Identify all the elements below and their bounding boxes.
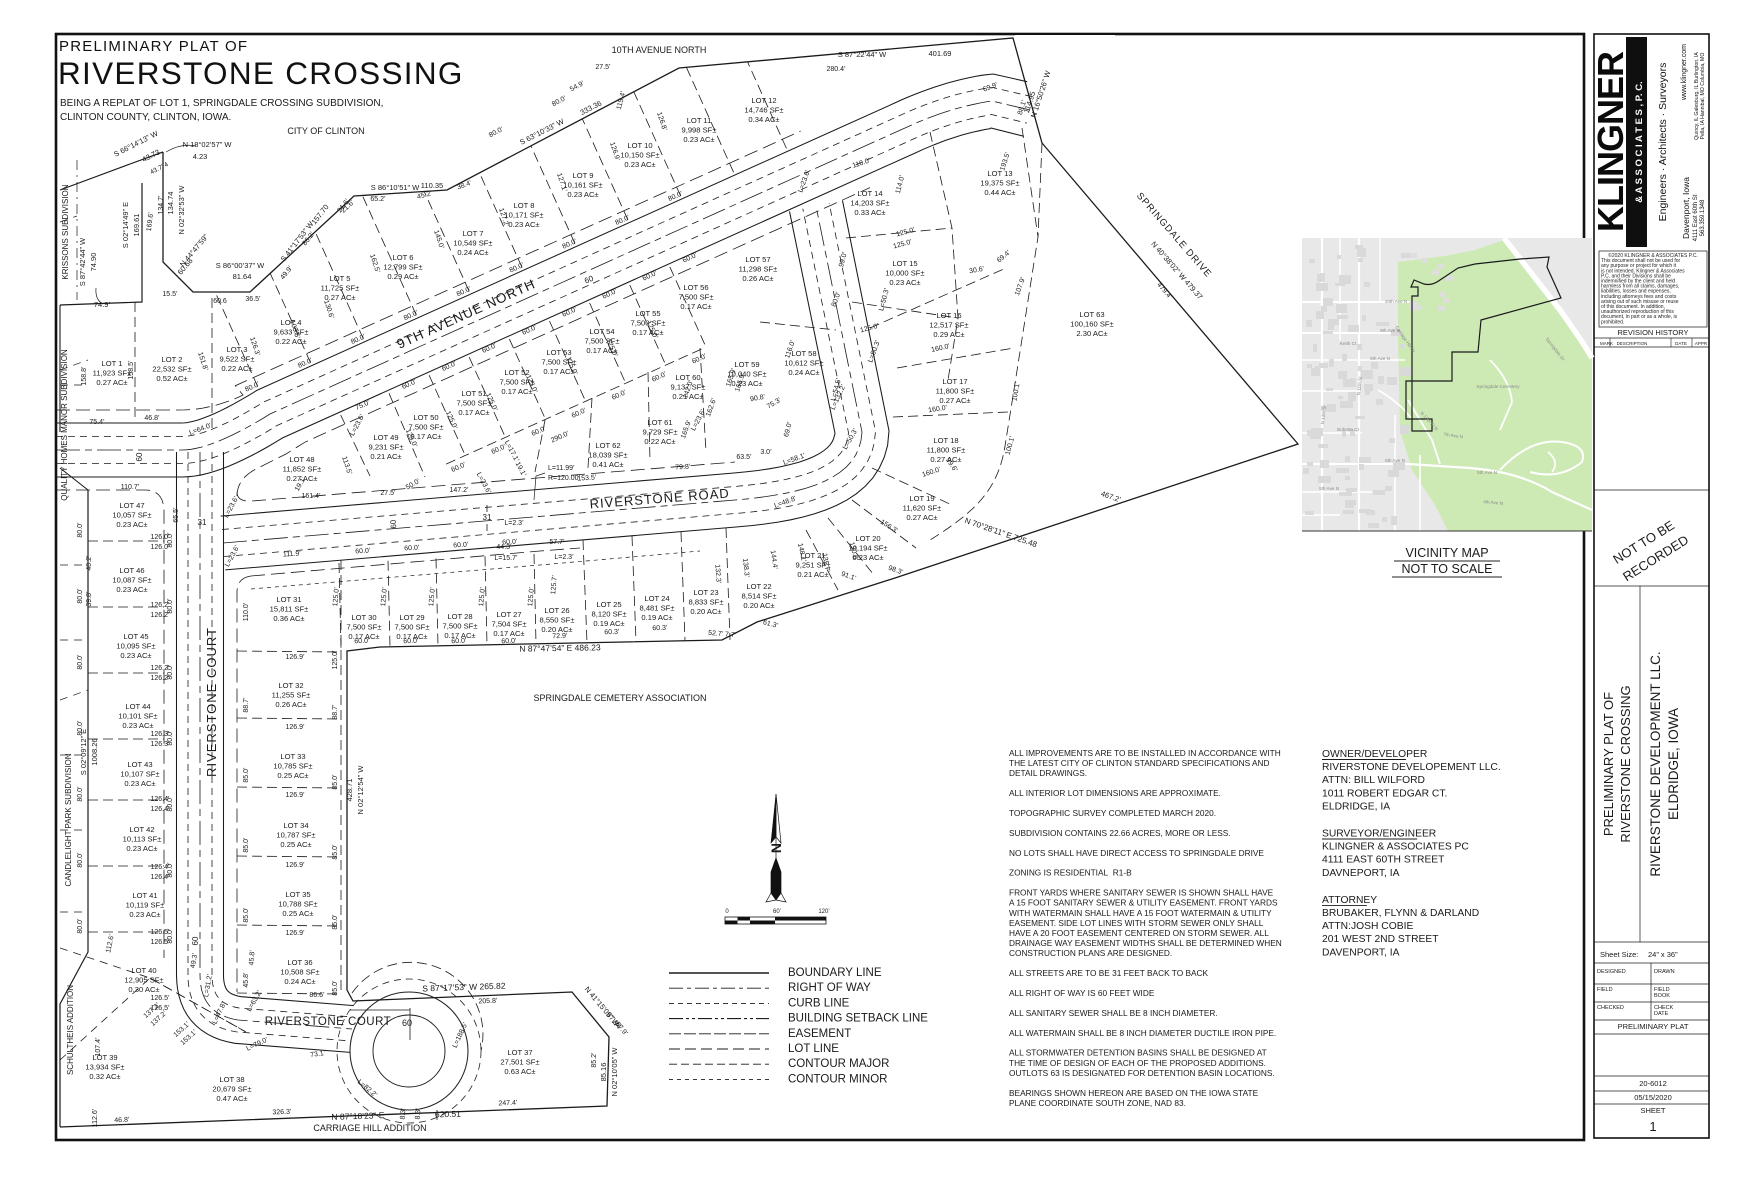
svg-text:ATTN:JOSH COBIE: ATTN:JOSH COBIE bbox=[1322, 921, 1413, 932]
svg-text:prohibited.: prohibited. bbox=[1601, 319, 1624, 325]
svg-text:LOT 59: LOT 59 bbox=[734, 360, 759, 369]
svg-text:ELDRIDGE, IA: ELDRIDGE, IA bbox=[1322, 801, 1390, 812]
svg-text:05/15/2020: 05/15/2020 bbox=[1634, 1093, 1672, 1102]
svg-text:CANDLELIGHT PARK SUBDIVISION: CANDLELIGHT PARK SUBDIVISION bbox=[64, 753, 73, 886]
svg-text:12,517 SF±: 12,517 SF± bbox=[929, 321, 968, 330]
svg-text:LOT 33: LOT 33 bbox=[280, 752, 305, 761]
svg-text:79.8’: 79.8’ bbox=[675, 463, 691, 471]
svg-text:LOT 42: LOT 42 bbox=[129, 825, 154, 834]
svg-text:11,255 SF±: 11,255 SF± bbox=[272, 691, 311, 700]
svg-text:CARRIAGE HILL ADDITION: CARRIAGE HILL ADDITION bbox=[313, 1123, 426, 1133]
svg-text:LOT 34: LOT 34 bbox=[283, 821, 308, 830]
svg-text:SHEET: SHEET bbox=[1640, 1106, 1665, 1115]
svg-text:ZONING IS RESIDENTIAL R1-B: ZONING IS RESIDENTIAL R1-B bbox=[1009, 868, 1132, 878]
svg-text:CHECKED: CHECKED bbox=[1597, 1005, 1624, 1011]
svg-text:THE LATEST CITY OF CLINTON STA: THE LATEST CITY OF CLINTON STANDARD SPEC… bbox=[1009, 758, 1269, 768]
svg-text:CONTOUR MINOR: CONTOUR MINOR bbox=[788, 1073, 887, 1085]
svg-text:60.0’: 60.0’ bbox=[501, 638, 517, 646]
svg-text:Springdale Cemetery: Springdale Cemetery bbox=[1476, 384, 1520, 389]
svg-text:LOT 1: LOT 1 bbox=[102, 359, 123, 368]
svg-text:0.23 AC±: 0.23 AC± bbox=[889, 278, 920, 287]
svg-text:100,160 SF±: 100,160 SF± bbox=[1070, 320, 1113, 329]
svg-text:10,000 SF±: 10,000 SF± bbox=[885, 269, 924, 278]
svg-text:85.2’: 85.2’ bbox=[591, 1052, 598, 1068]
svg-text:DATE: DATE bbox=[1654, 1011, 1669, 1017]
svg-text:126.9’: 126.9’ bbox=[285, 930, 305, 937]
svg-text:PRELIMINARY PLAT OF: PRELIMINARY PLAT OF bbox=[1601, 692, 1616, 836]
svg-text:85.0’: 85.0’ bbox=[243, 837, 250, 853]
svg-text:27,501 SF±: 27,501 SF± bbox=[500, 1058, 539, 1067]
svg-text:0.22 AC±: 0.22 AC± bbox=[644, 437, 675, 446]
svg-text:S 87°42’44” W: S 87°42’44” W bbox=[78, 237, 87, 286]
svg-text:0.23 AC±: 0.23 AC± bbox=[116, 585, 147, 594]
svg-text:0.19 AC±: 0.19 AC± bbox=[641, 613, 672, 622]
svg-text:6th Ave N: 6th Ave N bbox=[1385, 458, 1405, 463]
svg-text:205.8’: 205.8’ bbox=[478, 998, 498, 1006]
svg-text:Sheet Size:: Sheet Size: bbox=[1600, 950, 1638, 959]
svg-text:N 02°32’53” W: N 02°32’53” W bbox=[177, 185, 186, 235]
svg-text:KLINGNER: KLINGNER bbox=[1590, 51, 1631, 232]
svg-text:LOT 30: LOT 30 bbox=[351, 613, 376, 622]
svg-text:63.5’: 63.5’ bbox=[736, 454, 752, 461]
svg-text:132.3’: 132.3’ bbox=[713, 564, 721, 584]
svg-text:14,746 SF±: 14,746 SF± bbox=[744, 106, 783, 115]
svg-text:Keith Ct: Keith Ct bbox=[1340, 341, 1357, 346]
svg-text:0.17 AC±: 0.17 AC± bbox=[493, 629, 524, 638]
svg-text:BRUBAKER, FLYNN & DARLAND: BRUBAKER, FLYNN & DARLAND bbox=[1322, 908, 1479, 919]
svg-text:0.47 AC±: 0.47 AC± bbox=[216, 1094, 247, 1103]
svg-text:LOT 49: LOT 49 bbox=[373, 433, 398, 442]
svg-text:N 02°12’54” W: N 02°12’54” W bbox=[356, 765, 365, 815]
svg-text:TOPOGRAPHIC SURVEY COMPLETED M: TOPOGRAPHIC SURVEY COMPLETED MARCH 2020. bbox=[1009, 808, 1216, 818]
svg-text:LOT 10: LOT 10 bbox=[627, 141, 652, 150]
svg-text:BOUNDARY LINE: BOUNDARY LINE bbox=[788, 967, 882, 979]
svg-text:60.0’: 60.0’ bbox=[403, 638, 419, 646]
svg-text:S 86°10’51” W: S 86°10’51” W bbox=[371, 183, 420, 192]
svg-text:CITY OF CLINTON: CITY OF CLINTON bbox=[287, 126, 364, 136]
svg-text:4111 East 60th St: 4111 East 60th St bbox=[1693, 194, 1699, 241]
svg-text:9,729 SF±: 9,729 SF± bbox=[643, 428, 678, 437]
svg-text:10,095 SF±: 10,095 SF± bbox=[116, 642, 155, 651]
svg-text:EASEMENT: EASEMENT bbox=[788, 1028, 851, 1040]
svg-text:RIVERSTONE DEVELOPMENT LLC.: RIVERSTONE DEVELOPMENT LLC. bbox=[1648, 651, 1663, 876]
svg-text:153.5’: 153.5’ bbox=[577, 474, 597, 482]
svg-text:2.30 AC±: 2.30 AC± bbox=[1076, 329, 1107, 338]
svg-text:85.0’: 85.0’ bbox=[332, 914, 339, 930]
svg-text:LOT 15: LOT 15 bbox=[892, 259, 917, 268]
svg-text:L=2.3’: L=2.3’ bbox=[504, 520, 524, 527]
svg-text:80.0’: 80.0’ bbox=[167, 928, 174, 944]
svg-text:0.23 AC±: 0.23 AC± bbox=[122, 721, 153, 730]
svg-text:60.0’: 60.0’ bbox=[355, 547, 371, 555]
svg-text:DRAINAGE WAY EASEMENT WIDTHS S: DRAINAGE WAY EASEMENT WIDTHS SHALL BE DE… bbox=[1009, 938, 1282, 948]
svg-text:R=120.00’: R=120.00’ bbox=[548, 475, 581, 482]
svg-text:8,120 SF±: 8,120 SF± bbox=[592, 610, 627, 619]
svg-text:LOT 23: LOT 23 bbox=[693, 588, 718, 597]
svg-text:LOT 9: LOT 9 bbox=[573, 171, 594, 180]
svg-text:60: 60 bbox=[135, 452, 144, 461]
svg-text:46.8’: 46.8’ bbox=[114, 1117, 130, 1125]
svg-text:8th Ave N: 8th Ave N bbox=[1370, 356, 1390, 361]
svg-text:11,620 SF±: 11,620 SF± bbox=[903, 504, 942, 513]
svg-text:80.0’: 80.0’ bbox=[77, 786, 84, 802]
svg-text:563.359.1348: 563.359.1348 bbox=[1700, 199, 1706, 236]
svg-text:KRISSONS SUBDIVISION: KRISSONS SUBDIVISION bbox=[61, 184, 70, 279]
svg-text:L=2.3’: L=2.3’ bbox=[554, 554, 574, 561]
svg-text:31: 31 bbox=[198, 518, 207, 527]
svg-text:10,788 SF±: 10,788 SF± bbox=[278, 900, 317, 909]
svg-text:60: 60 bbox=[191, 936, 200, 945]
svg-text:134.7’: 134.7’ bbox=[158, 195, 165, 215]
svg-text:125.0’: 125.0’ bbox=[332, 650, 339, 670]
svg-text:10,150 SF±: 10,150 SF± bbox=[620, 151, 659, 160]
svg-text:0.23 AC±: 0.23 AC± bbox=[129, 910, 160, 919]
svg-text:BOOK: BOOK bbox=[1654, 993, 1670, 999]
svg-text:247.4’: 247.4’ bbox=[498, 1100, 518, 1108]
svg-text:OWNER/DEVELOPER: OWNER/DEVELOPER bbox=[1322, 749, 1427, 760]
svg-text:80.0’: 80.0’ bbox=[77, 654, 84, 670]
svg-text:0.29 AC±: 0.29 AC± bbox=[933, 330, 964, 339]
svg-text:12,799 SF±: 12,799 SF± bbox=[383, 263, 422, 272]
svg-text:401.69: 401.69 bbox=[929, 49, 952, 58]
svg-text:10,171 SF±: 10,171 SF± bbox=[504, 211, 543, 220]
svg-text:10,101 SF±: 10,101 SF± bbox=[118, 712, 157, 721]
svg-text:OUTLOTS 63 IS DESIGNATED FOR D: OUTLOTS 63 IS DESIGNATED FOR DETENTION B… bbox=[1009, 1068, 1275, 1078]
svg-text:0.25 AC±: 0.25 AC± bbox=[282, 909, 313, 918]
svg-text:8,514 SF±: 8,514 SF± bbox=[742, 592, 777, 601]
svg-text:11,298 SF±: 11,298 SF± bbox=[739, 265, 778, 274]
svg-text:0.27 AC±: 0.27 AC± bbox=[939, 396, 970, 405]
svg-text:8.3’: 8.3’ bbox=[415, 1108, 423, 1120]
svg-text:REVISION HISTORY: REVISION HISTORY bbox=[1618, 328, 1689, 337]
svg-text:126.9’: 126.9’ bbox=[285, 792, 305, 799]
svg-text:7,500 SF±: 7,500 SF± bbox=[395, 623, 430, 632]
svg-text:S 87°22’44” W: S 87°22’44” W bbox=[838, 50, 887, 59]
svg-text:5th Ave N: 5th Ave N bbox=[1319, 486, 1339, 491]
svg-text:ALL SANITARY SEWER SHALL BE 8: ALL SANITARY SEWER SHALL BE 8 INCH DIAME… bbox=[1009, 1008, 1218, 1018]
svg-text:40.2’: 40.2’ bbox=[86, 555, 93, 571]
svg-text:36.5’: 36.5’ bbox=[245, 296, 261, 303]
svg-text:80.0’: 80.0’ bbox=[167, 664, 174, 680]
svg-text:60’: 60’ bbox=[773, 909, 781, 915]
svg-text:RIVERSTONE CROSSING: RIVERSTONE CROSSING bbox=[1618, 685, 1633, 842]
svg-text:80.0’: 80.0’ bbox=[77, 720, 84, 736]
svg-text:DATE: DATE bbox=[1675, 341, 1687, 346]
svg-text:LOT 57: LOT 57 bbox=[745, 255, 770, 264]
svg-text:LOT 32: LOT 32 bbox=[278, 681, 303, 690]
svg-text:4111 EAST 60TH STREET: 4111 EAST 60TH STREET bbox=[1322, 855, 1445, 866]
svg-text:27.5’: 27.5’ bbox=[595, 64, 611, 71]
svg-text:LOT 43: LOT 43 bbox=[127, 760, 152, 769]
svg-text:0.23 AC±: 0.23 AC± bbox=[508, 220, 539, 229]
svg-text:LOT 14: LOT 14 bbox=[857, 189, 882, 198]
svg-text:60.0’: 60.0’ bbox=[502, 538, 518, 546]
svg-text:85.0’: 85.0’ bbox=[332, 774, 339, 790]
svg-text:MARK: MARK bbox=[1600, 341, 1613, 346]
svg-text:HAVE A 20 FOOT EASEMENT CENTER: HAVE A 20 FOOT EASEMENT CENTERED ON STOR… bbox=[1009, 928, 1269, 938]
svg-text:CURB LINE: CURB LINE bbox=[788, 997, 850, 1009]
svg-text:LOT 45: LOT 45 bbox=[123, 632, 148, 641]
svg-text:0.23 AC±: 0.23 AC± bbox=[124, 779, 155, 788]
svg-text:428.71: 428.71 bbox=[345, 779, 354, 802]
svg-text:201 WEST 2ND STREET: 201 WEST 2ND STREET bbox=[1322, 934, 1439, 945]
svg-text:14,203 SF±: 14,203 SF± bbox=[850, 199, 889, 208]
svg-text:BEING A REPLAT OF LOT 1, SPRIN: BEING A REPLAT OF LOT 1, SPRINGDALE CROS… bbox=[60, 98, 383, 109]
svg-text:KLINGNER & ASSOCIATES PC: KLINGNER & ASSOCIATES PC bbox=[1322, 842, 1469, 853]
svg-text:LOT 31: LOT 31 bbox=[276, 595, 301, 604]
svg-text:0.30 AC±: 0.30 AC± bbox=[128, 985, 159, 994]
svg-text:10,113 SF±: 10,113 SF± bbox=[123, 835, 162, 844]
svg-text:LOT 2: LOT 2 bbox=[162, 355, 183, 364]
svg-text:DAVNEPORT, IA: DAVNEPORT, IA bbox=[1322, 868, 1400, 879]
svg-text:7,500 SF±: 7,500 SF± bbox=[443, 622, 478, 631]
svg-text:CONTOUR MAJOR: CONTOUR MAJOR bbox=[788, 1058, 889, 1070]
svg-text:0.27 AC±: 0.27 AC± bbox=[906, 513, 937, 522]
svg-text:74.9’: 74.9’ bbox=[94, 300, 111, 309]
svg-text:L=15.7’: L=15.7’ bbox=[494, 555, 518, 562]
svg-text:LOT 25: LOT 25 bbox=[596, 600, 621, 609]
svg-text:0.21 AC±: 0.21 AC± bbox=[370, 452, 401, 461]
svg-text:57.7’: 57.7’ bbox=[549, 539, 565, 546]
svg-text:0.17 AC±: 0.17 AC± bbox=[680, 302, 711, 311]
svg-text:0.17 AC±: 0.17 AC± bbox=[458, 408, 489, 417]
svg-text:LOT 5: LOT 5 bbox=[330, 274, 351, 283]
svg-text:85.0’: 85.0’ bbox=[243, 767, 250, 783]
svg-text:45.8’: 45.8’ bbox=[248, 950, 256, 966]
svg-text:VICINITY MAP: VICINITY MAP bbox=[1405, 546, 1488, 560]
svg-text:SURVEYOR/ENGINEER: SURVEYOR/ENGINEER bbox=[1322, 829, 1436, 840]
svg-text:LOT LINE: LOT LINE bbox=[788, 1043, 839, 1055]
svg-text:111.9’: 111.9’ bbox=[283, 551, 302, 559]
svg-text:DAVENPORT, IA: DAVENPORT, IA bbox=[1322, 947, 1400, 958]
svg-text:60.0’: 60.0’ bbox=[354, 638, 370, 646]
svg-text:A 15 FOOT SANITARY SEWER & UTI: A 15 FOOT SANITARY SEWER & UTILITY EASEM… bbox=[1009, 898, 1278, 908]
svg-text:158.8’: 158.8’ bbox=[81, 366, 88, 386]
svg-text:RIVERSTONE COURT: RIVERSTONE COURT bbox=[265, 1016, 391, 1028]
svg-text:60.0’: 60.0’ bbox=[404, 544, 420, 552]
svg-text:86.6’: 86.6’ bbox=[309, 992, 325, 999]
svg-text:LOT 63: LOT 63 bbox=[1079, 310, 1104, 319]
svg-text:110.35: 110.35 bbox=[421, 181, 443, 190]
svg-text:0.63 AC±: 0.63 AC± bbox=[504, 1067, 535, 1076]
svg-text:LOT 62: LOT 62 bbox=[595, 441, 620, 450]
svg-text:ALL STREETS ARE TO BE 31 FEET: ALL STREETS ARE TO BE 31 FEET BACK TO BA… bbox=[1009, 968, 1209, 978]
svg-text:& A S S O C I A T E S , P. C.: & A S S O C I A T E S , P. C. bbox=[1634, 81, 1645, 202]
svg-text:0.32 AC±: 0.32 AC± bbox=[89, 1072, 120, 1081]
svg-text:5th Ave N: 5th Ave N bbox=[1477, 470, 1497, 475]
svg-text:FRONT YARDS WHERE SANITARY SEW: FRONT YARDS WHERE SANITARY SEWER IS SHOW… bbox=[1009, 888, 1274, 898]
svg-text:0.33 AC±: 0.33 AC± bbox=[854, 208, 885, 217]
svg-text:LOT 17: LOT 17 bbox=[942, 377, 967, 386]
svg-text:72.9’: 72.9’ bbox=[552, 633, 568, 641]
svg-text:10,787 SF±: 10,787 SF± bbox=[276, 831, 315, 840]
svg-text:0.27 AC±: 0.27 AC± bbox=[96, 378, 127, 387]
svg-text:LOT 3: LOT 3 bbox=[227, 345, 248, 354]
svg-text:60.3’: 60.3’ bbox=[604, 629, 620, 637]
svg-text:80.0’: 80.0’ bbox=[167, 598, 174, 614]
svg-text:20-6012: 20-6012 bbox=[1639, 1079, 1667, 1088]
svg-text:60: 60 bbox=[402, 1018, 412, 1028]
svg-text:S 02°14’49” E: S 02°14’49” E bbox=[121, 202, 130, 248]
svg-text:10,119 SF±: 10,119 SF± bbox=[126, 901, 165, 910]
svg-text:LOT 38: LOT 38 bbox=[219, 1075, 244, 1084]
svg-text:LOT 37: LOT 37 bbox=[507, 1048, 532, 1057]
svg-text:LOT 11: LOT 11 bbox=[687, 116, 712, 125]
svg-text:10,107 SF±: 10,107 SF± bbox=[120, 770, 159, 779]
svg-text:0.23 AC±: 0.23 AC± bbox=[120, 651, 151, 660]
svg-text:10,087 SF±: 10,087 SF± bbox=[112, 576, 151, 585]
svg-text:LOT 20: LOT 20 bbox=[855, 534, 880, 543]
svg-text:10th Ave N: 10th Ave N bbox=[1385, 299, 1407, 304]
svg-text:80.0’: 80.0’ bbox=[167, 532, 174, 548]
svg-text:N 18°02’57” W: N 18°02’57” W bbox=[183, 140, 233, 149]
svg-text:LOT 22: LOT 22 bbox=[746, 582, 771, 591]
svg-text:7,500 SF±: 7,500 SF± bbox=[457, 399, 492, 408]
svg-text:19,375 SF±: 19,375 SF± bbox=[980, 179, 1019, 188]
svg-text:LOT 26: LOT 26 bbox=[544, 606, 569, 615]
svg-text:7,500 SF±: 7,500 SF± bbox=[679, 293, 714, 302]
svg-text:8,833 SF±: 8,833 SF± bbox=[689, 598, 724, 607]
svg-text:LOT 18: LOT 18 bbox=[933, 436, 958, 445]
svg-text:0.20 AC±: 0.20 AC± bbox=[690, 607, 721, 616]
svg-text:280.4’: 280.4’ bbox=[826, 66, 846, 73]
svg-text:PLANE COORDINATE SOUTH ZONE, N: PLANE COORDINATE SOUTH ZONE, NAD 83. bbox=[1009, 1098, 1186, 1108]
svg-text:LOT 36: LOT 36 bbox=[287, 958, 312, 967]
svg-text:126.5’: 126.5’ bbox=[150, 995, 170, 1002]
svg-text:126.9’: 126.9’ bbox=[285, 862, 305, 869]
svg-text:0.52 AC±: 0.52 AC± bbox=[156, 374, 187, 383]
svg-text:BEARINGS SHOWN HEREON ARE BASE: BEARINGS SHOWN HEREON ARE BASED ON THE I… bbox=[1009, 1088, 1259, 1098]
svg-text:LOT 50: LOT 50 bbox=[413, 413, 438, 422]
svg-text:0.23 AC±: 0.23 AC± bbox=[116, 520, 147, 529]
svg-text:0.22 AC±: 0.22 AC± bbox=[221, 364, 252, 373]
svg-text:8,550 SF±: 8,550 SF± bbox=[540, 616, 575, 625]
svg-text:0.26 AC±: 0.26 AC± bbox=[742, 274, 773, 283]
svg-text:ALL WATERMAIN SHALL BE 8 INCH: ALL WATERMAIN SHALL BE 8 INCH DIAMETER D… bbox=[1009, 1028, 1276, 1038]
svg-text:ATTORNEY: ATTORNEY bbox=[1322, 895, 1377, 906]
svg-text:N 02°10’05” W: N 02°10’05” W bbox=[610, 1047, 619, 1097]
svg-text:LOT 61: LOT 61 bbox=[647, 418, 672, 427]
svg-text:LOT 53: LOT 53 bbox=[546, 348, 571, 357]
svg-text:75.4’: 75.4’ bbox=[89, 419, 105, 426]
svg-text:N: N bbox=[768, 843, 784, 853]
svg-text:15.5’: 15.5’ bbox=[162, 291, 178, 298]
svg-text:Bobetta Ct: Bobetta Ct bbox=[1337, 427, 1359, 432]
svg-text:www.klingner.com: www.klingner.com bbox=[1681, 44, 1688, 101]
svg-text:65.5’: 65.5’ bbox=[173, 507, 180, 523]
svg-text:LOT 40: LOT 40 bbox=[131, 966, 156, 975]
svg-text:RIVERSTONE CROSSING: RIVERSTONE CROSSING bbox=[58, 55, 464, 91]
svg-text:20,679 SF±: 20,679 SF± bbox=[212, 1085, 251, 1094]
svg-text:10,508 SF±: 10,508 SF± bbox=[280, 968, 319, 977]
svg-text:LOT 24: LOT 24 bbox=[644, 594, 669, 603]
svg-text:88.7’: 88.7’ bbox=[332, 704, 339, 720]
svg-text:0.23 AC±: 0.23 AC± bbox=[567, 190, 598, 199]
svg-text:CONSTRUCTION PLANS ARE DESIGNE: CONSTRUCTION PLANS ARE DESIGNED. bbox=[1009, 948, 1172, 958]
svg-text:46.8’: 46.8’ bbox=[144, 415, 160, 422]
svg-text:81.64: 81.64 bbox=[233, 272, 252, 281]
svg-text:107.4’: 107.4’ bbox=[95, 1037, 102, 1057]
svg-text:65.2’: 65.2’ bbox=[370, 196, 386, 203]
svg-text:0.25 AC±: 0.25 AC± bbox=[280, 840, 311, 849]
svg-text:N 87°18’23” E: N 87°18’23” E bbox=[331, 1110, 385, 1122]
svg-text:7,500 SF±: 7,500 SF± bbox=[347, 623, 382, 632]
svg-text:7,504 SF±: 7,504 SF± bbox=[492, 620, 527, 629]
svg-text:0.17 AC±: 0.17 AC± bbox=[501, 387, 532, 396]
svg-text:PRELIMINARY PLAT OF: PRELIMINARY PLAT OF bbox=[59, 38, 248, 55]
svg-text:85.0’: 85.0’ bbox=[243, 907, 250, 923]
svg-text:9,522 SF±: 9,522 SF± bbox=[220, 355, 255, 364]
svg-text:161.4’: 161.4’ bbox=[301, 493, 321, 500]
svg-text:DETAIL DRAWINGS.: DETAIL DRAWINGS. bbox=[1009, 768, 1087, 778]
svg-text:LOT 48: LOT 48 bbox=[289, 455, 314, 464]
svg-text:EASEMENT. SIDE LOT LINES WITH: EASEMENT. SIDE LOT LINES WITH STORM SEWE… bbox=[1009, 918, 1264, 928]
svg-text:LOT 58: LOT 58 bbox=[791, 349, 816, 358]
svg-text:10,785 SF±: 10,785 SF± bbox=[273, 762, 312, 771]
svg-text:60.6: 60.6 bbox=[213, 298, 227, 305]
svg-text:LOT 54: LOT 54 bbox=[589, 327, 614, 336]
svg-text:N 87°47’54” E 486.23: N 87°47’54” E 486.23 bbox=[519, 642, 601, 653]
svg-text:80.0’: 80.0’ bbox=[77, 522, 84, 538]
svg-text:LOT 12: LOT 12 bbox=[751, 96, 776, 105]
svg-text:BUILDING SETBACK LINE: BUILDING SETBACK LINE bbox=[788, 1013, 928, 1025]
svg-text:24” x 36”: 24” x 36” bbox=[1648, 950, 1678, 959]
svg-text:13,934 SF±: 13,934 SF± bbox=[85, 1063, 124, 1072]
svg-text:SCHULTHEIS ADDITION: SCHULTHEIS ADDITION bbox=[66, 985, 75, 1075]
svg-text:0.23 AC±: 0.23 AC± bbox=[126, 844, 157, 853]
svg-text:11,800 SF±: 11,800 SF± bbox=[936, 387, 975, 396]
svg-text:LOT 47: LOT 47 bbox=[119, 501, 144, 510]
svg-text:60.0’: 60.0’ bbox=[451, 638, 467, 646]
svg-text:LOT 41: LOT 41 bbox=[132, 891, 157, 900]
svg-text:DRAWN: DRAWN bbox=[1654, 969, 1675, 975]
svg-text:0.20 AC±: 0.20 AC± bbox=[743, 601, 774, 610]
svg-text:110.0’: 110.0’ bbox=[243, 602, 250, 621]
svg-text:60.0’: 60.0’ bbox=[453, 541, 469, 549]
svg-text:126.9’: 126.9’ bbox=[285, 724, 305, 731]
svg-text:11,800 SF±: 11,800 SF± bbox=[927, 446, 966, 455]
svg-text:LOT 56: LOT 56 bbox=[683, 283, 708, 292]
svg-text:DESCRIPTION: DESCRIPTION bbox=[1617, 341, 1648, 346]
svg-text:3.0’: 3.0’ bbox=[760, 449, 772, 456]
svg-text:Davenport, Iowa: Davenport, Iowa bbox=[1681, 177, 1691, 239]
svg-text:11,725 SF±: 11,725 SF± bbox=[321, 284, 360, 293]
svg-text:12,905 SF±: 12,905 SF± bbox=[124, 976, 163, 985]
svg-text:169.61: 169.61 bbox=[132, 214, 141, 237]
svg-text:80.0’: 80.0’ bbox=[77, 588, 84, 604]
svg-text:134.74: 134.74 bbox=[166, 192, 175, 215]
svg-text:ATTN: BILL WILFORD: ATTN: BILL WILFORD bbox=[1322, 775, 1425, 786]
svg-text:620.51: 620.51 bbox=[435, 1109, 462, 1120]
svg-text:SPRINGDALE CEMETERY ASSOCIATIO: SPRINGDALE CEMETERY ASSOCIATION bbox=[533, 693, 706, 703]
svg-text:147.2’: 147.2’ bbox=[449, 487, 469, 494]
svg-text:326.3’: 326.3’ bbox=[272, 1109, 292, 1117]
svg-text:THE TIME OF DESIGN OF EACH OF: THE TIME OF DESIGN OF EACH OF THE PROPOS… bbox=[1009, 1058, 1266, 1068]
svg-text:LOT 51: LOT 51 bbox=[461, 389, 486, 398]
svg-text:126.9’: 126.9’ bbox=[285, 654, 305, 661]
svg-text:ALL IMPROVEMENTS ARE TO BE INS: ALL IMPROVEMENTS ARE TO BE INSTALLED IN … bbox=[1009, 748, 1281, 758]
svg-text:4.23: 4.23 bbox=[193, 152, 208, 161]
svg-text:80.0’: 80.0’ bbox=[77, 918, 84, 934]
svg-text:88.7’: 88.7’ bbox=[243, 697, 250, 713]
svg-text:LOT 46: LOT 46 bbox=[119, 566, 144, 575]
svg-text:11,923 SF±: 11,923 SF± bbox=[93, 369, 132, 378]
svg-text:85.0’: 85.0’ bbox=[332, 844, 339, 860]
svg-text:DESIGNED: DESIGNED bbox=[1597, 969, 1626, 975]
svg-text:PRELIMINARY PLAT: PRELIMINARY PLAT bbox=[1618, 1022, 1689, 1031]
svg-text:74.90: 74.90 bbox=[89, 253, 98, 272]
svg-text:45.8’: 45.8’ bbox=[243, 972, 250, 988]
